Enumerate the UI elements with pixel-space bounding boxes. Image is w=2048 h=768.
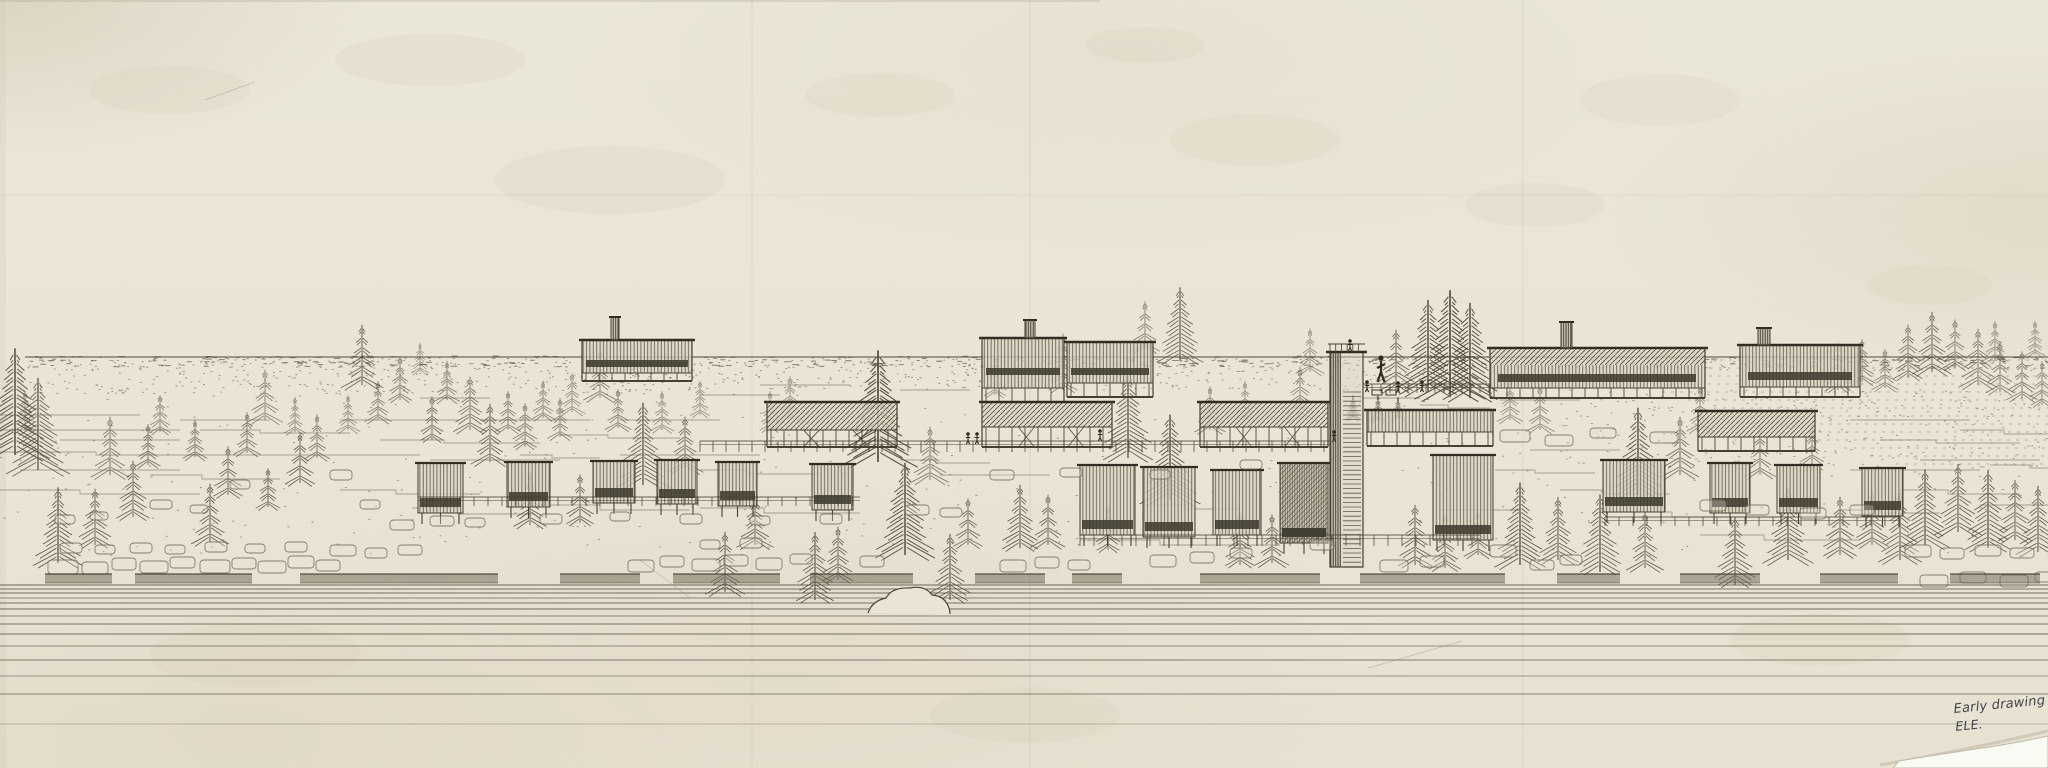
drawing-canvas [0,0,2048,768]
torn-corner [1880,731,2048,768]
buildings [579,317,1863,451]
architectural-elevation-drawing: Early drawing ELE. [0,0,2048,768]
stair-tower [1326,344,1367,567]
